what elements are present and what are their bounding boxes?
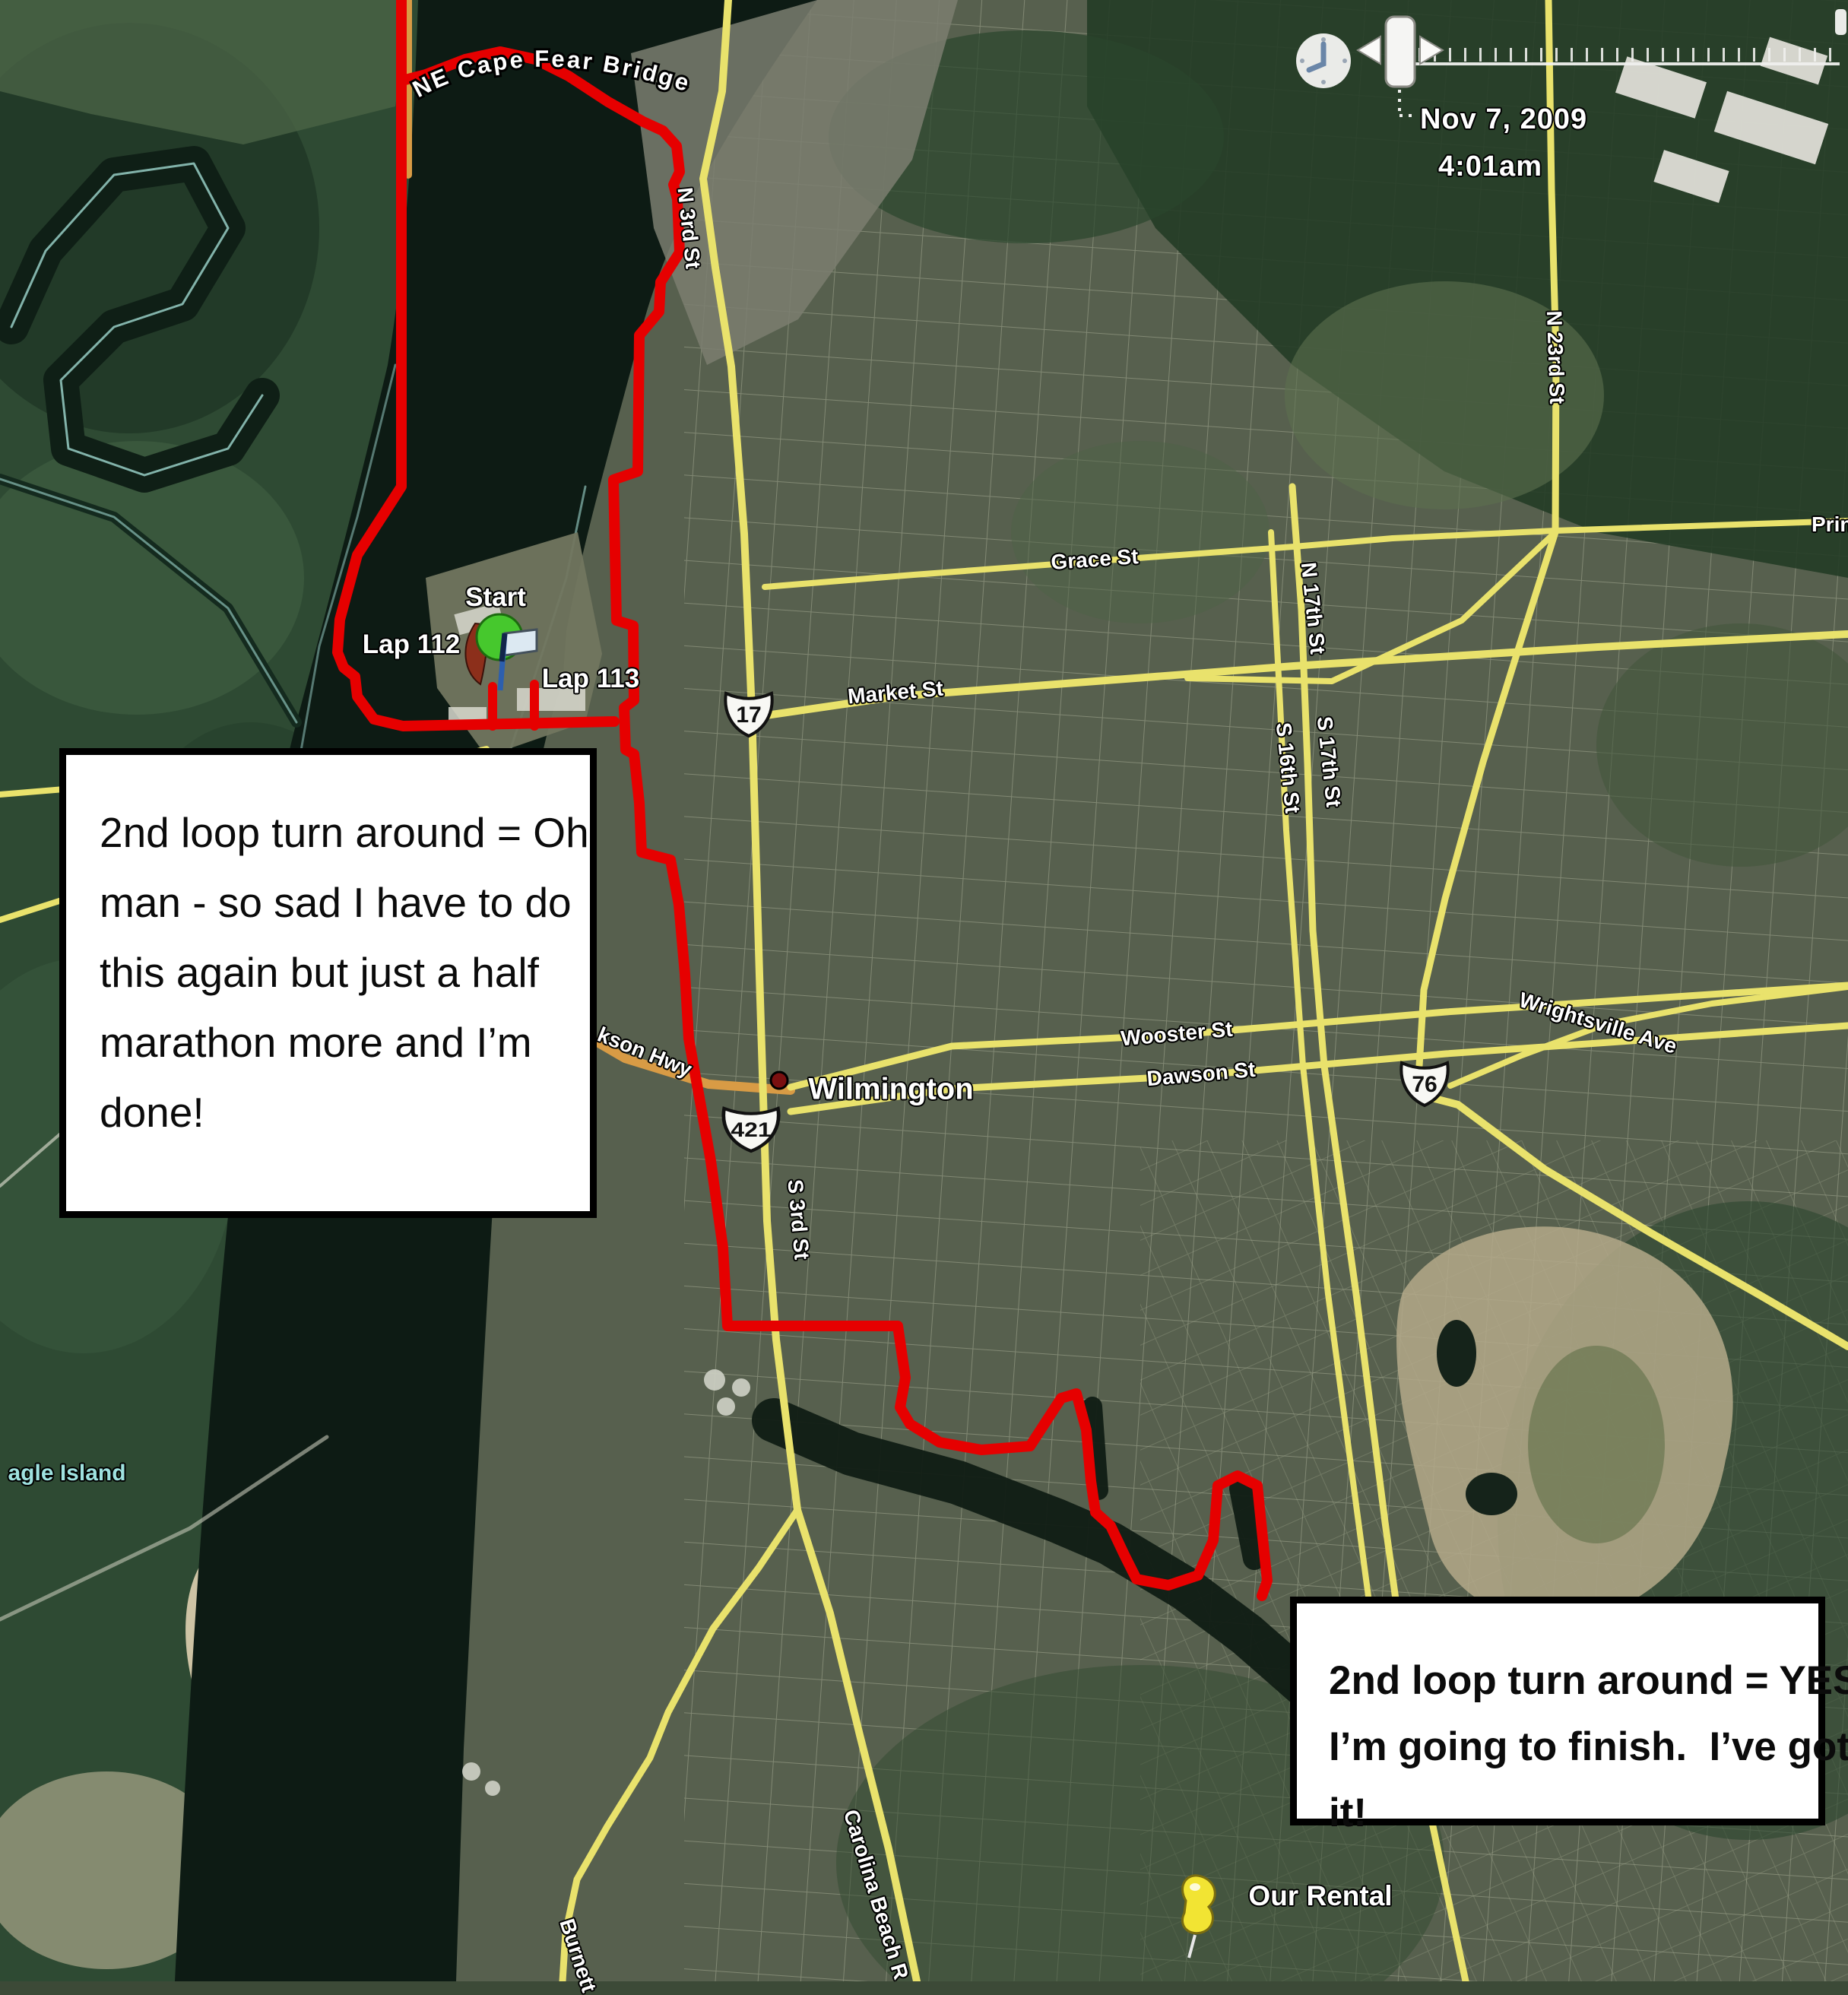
timeline-time: 4:01am [1438, 151, 1542, 183]
marker-label-our-rental: Our Rental [1248, 1880, 1392, 1912]
annotation-line: done! [100, 1077, 575, 1147]
slider-handle[interactable] [1386, 17, 1415, 87]
google-earth-satellite-view: { "timeline": { "date": "Nov 7, 2009", "… [0, 0, 1848, 1981]
place-label-eagle-island: agle Island [8, 1461, 125, 1486]
annotation-line: this again but just a half [100, 937, 575, 1007]
svg-text:421: 421 [731, 1118, 771, 1141]
annotation-line: man - so sad I have to do [100, 867, 575, 937]
annotation-line: 2nd loop turn around = Oh [100, 798, 575, 867]
marker-label-lap112: Lap 112 [363, 630, 460, 660]
marker-label-start: Start [465, 582, 526, 613]
marker-label-lap113: Lap 113 [542, 664, 639, 694]
city-dot-wilmington[interactable] [771, 1072, 788, 1089]
road-label-n23rd-st: N 23rd St [1542, 310, 1569, 404]
creek-finger-2 [1241, 1489, 1254, 1559]
svg-text:76: 76 [1412, 1072, 1437, 1097]
place-label-wilmington: Wilmington [808, 1073, 973, 1107]
annotation-line: marathon more and I’m [100, 1007, 575, 1077]
field-patch-3 [1011, 441, 1270, 623]
golf-pond-2 [1466, 1473, 1517, 1515]
golf-green-1 [1528, 1346, 1665, 1543]
annotation-line: 2nd loop turn around = YES! [1329, 1648, 1811, 1714]
annotation-box-second-loop: 2nd loop turn around = YES! I’m going to… [1290, 1597, 1825, 1825]
annotation-line: it! [1329, 1780, 1811, 1846]
golf-pond-1 [1437, 1320, 1476, 1387]
timeline-end-cap[interactable] [1835, 9, 1846, 35]
annotation-line: I’m going to finish. I’ve got [1329, 1714, 1811, 1780]
timeline-date: Nov 7, 2009 [1420, 103, 1587, 136]
annotation-box-first-loop: 2nd loop turn around = Oh man - so sad I… [59, 748, 597, 1218]
road-label-princess: Princ [1812, 512, 1848, 537]
svg-text:17: 17 [736, 703, 761, 728]
